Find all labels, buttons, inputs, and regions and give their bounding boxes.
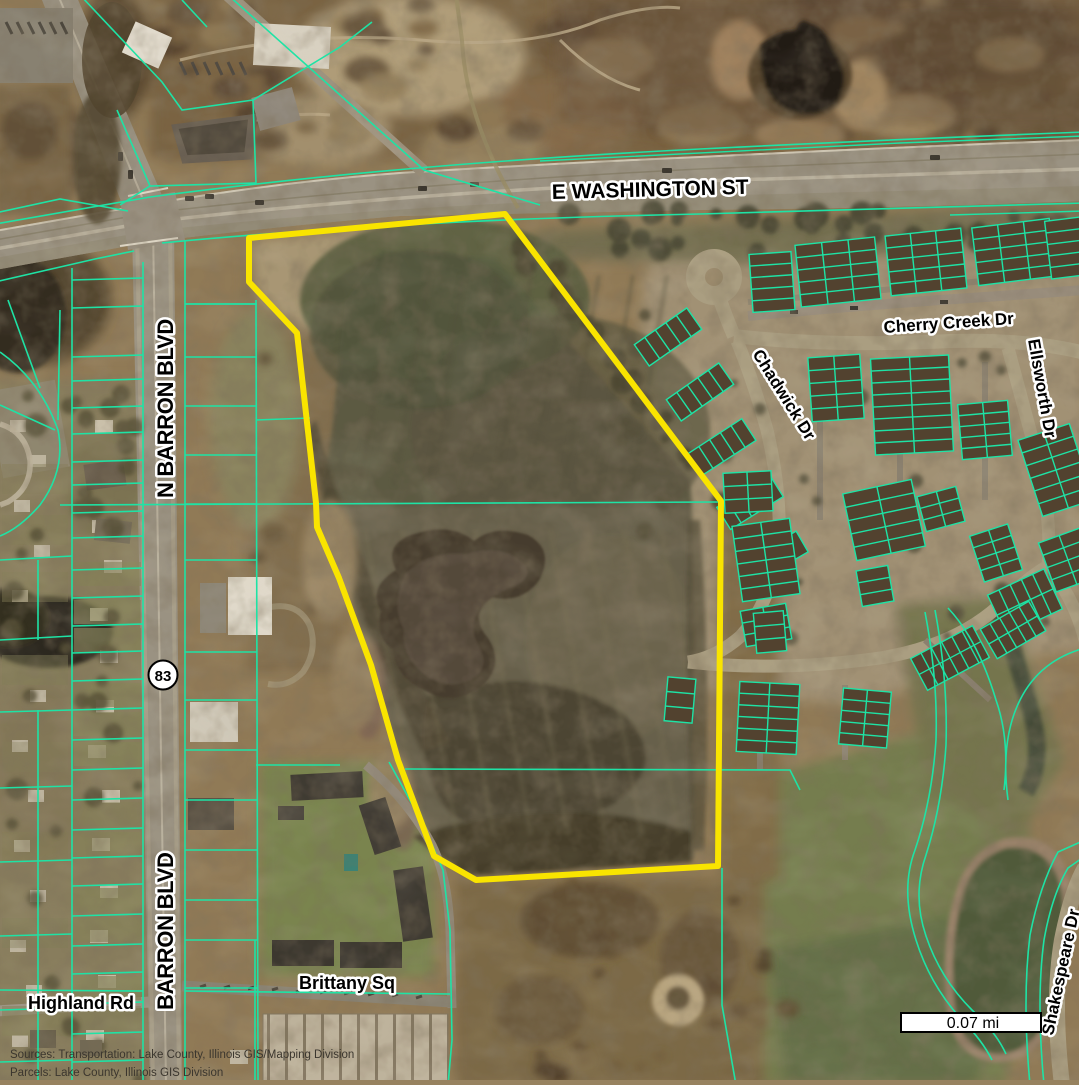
- svg-text:Highland Rd: Highland Rd: [28, 993, 134, 1013]
- svg-text:Parcels: Lake County, Illinois: Parcels: Lake County, Illinois GIS Divis…: [10, 1067, 223, 1079]
- svg-text:BARRON BLVD: BARRON BLVD: [153, 852, 178, 1010]
- svg-text:N BARRON BLVD: N BARRON BLVD: [153, 319, 178, 498]
- svg-text:0.07 mi: 0.07 mi: [947, 1015, 999, 1032]
- svg-text:Sources: Transportation: Lake: Sources: Transportation: Lake County, Il…: [10, 1049, 354, 1061]
- svg-text:Brittany Sq: Brittany Sq: [299, 973, 395, 993]
- svg-text:83: 83: [155, 668, 172, 685]
